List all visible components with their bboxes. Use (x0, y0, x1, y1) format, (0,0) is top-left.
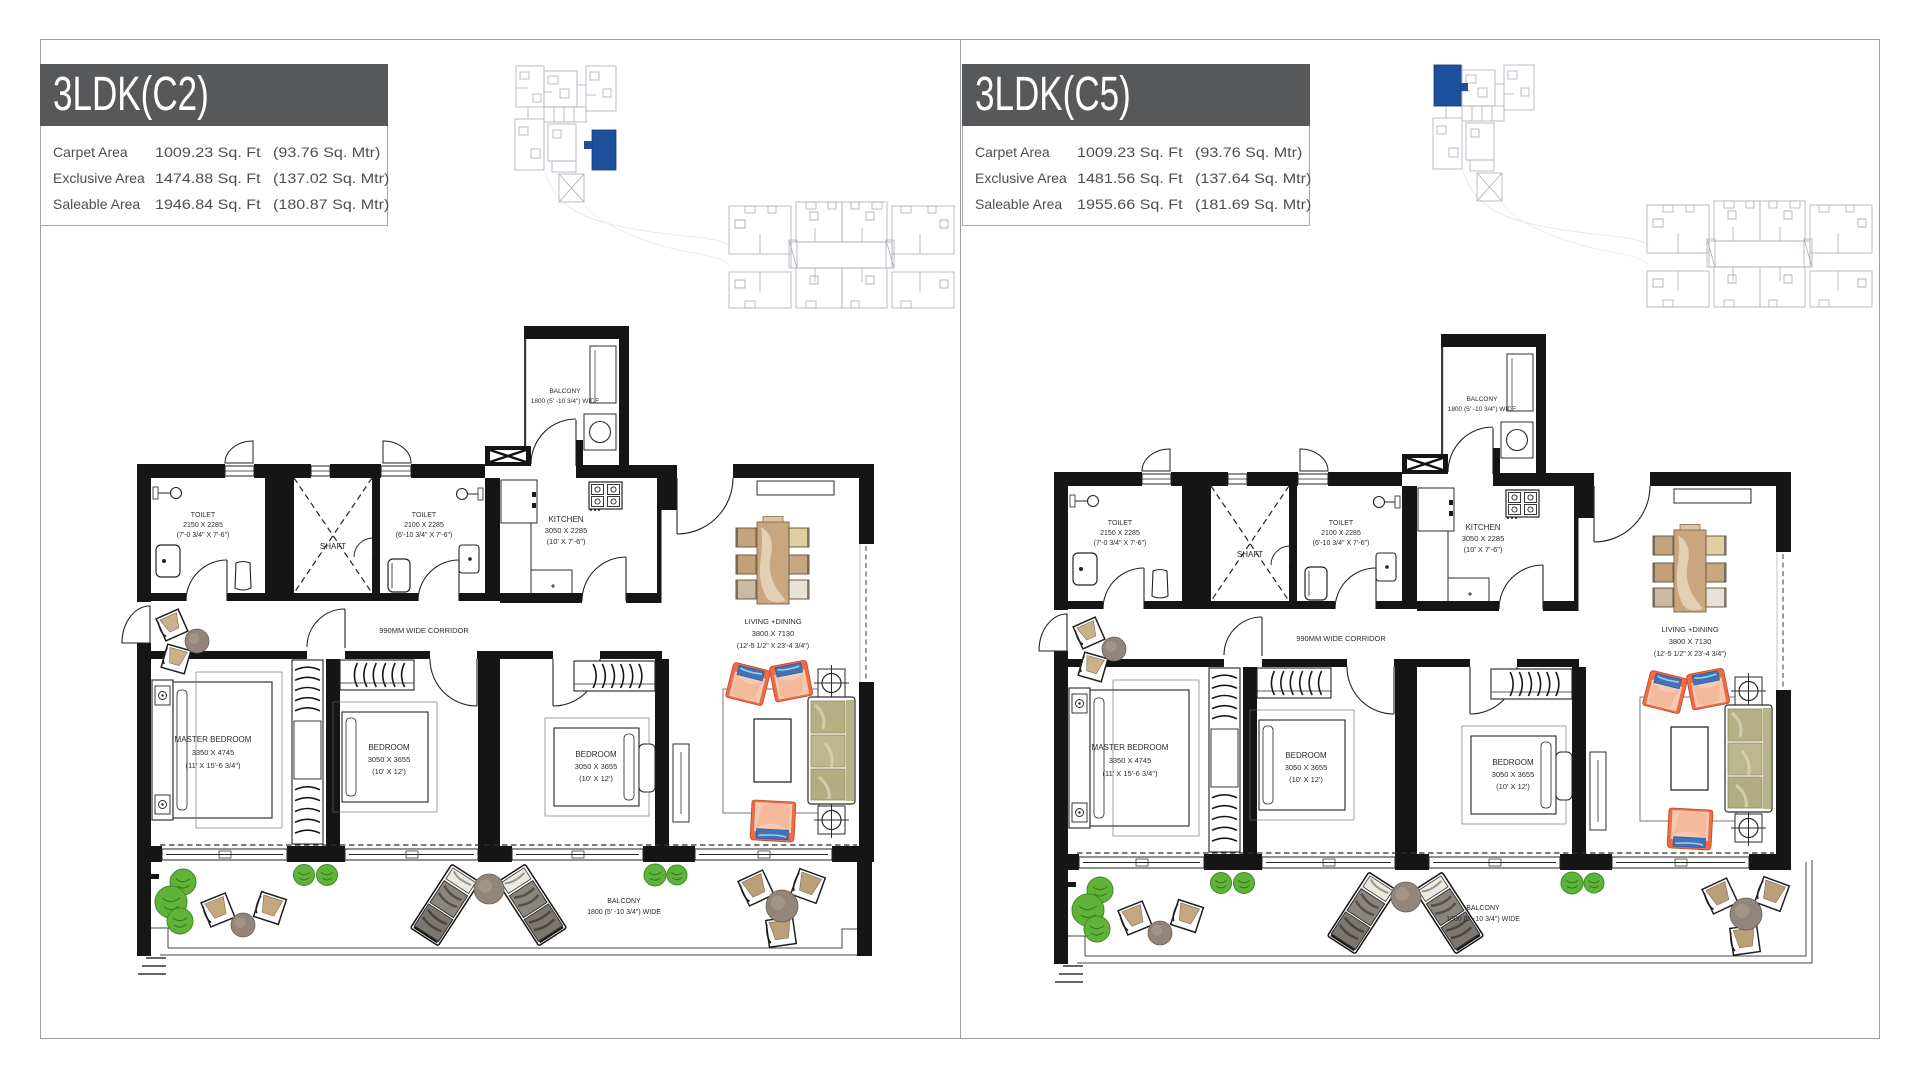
svg-text:BALCONY: BALCONY (607, 898, 641, 905)
svg-text:TOILET: TOILET (1108, 520, 1133, 527)
svg-text:990MM WIDE CORRIDOR: 990MM WIDE CORRIDOR (1296, 634, 1386, 643)
svg-text:(12'-5 1/2" X 23'-4 3/4"): (12'-5 1/2" X 23'-4 3/4") (737, 643, 809, 650)
svg-text:3050 X 3655: 3050 X 3655 (1285, 763, 1328, 772)
svg-text:3350 X 4745: 3350 X 4745 (192, 748, 235, 757)
svg-text:MASTER BEDROOM: MASTER BEDROOM (1092, 743, 1169, 752)
svg-text:3050 X 2285: 3050 X 2285 (545, 526, 588, 535)
svg-text:BEDROOM: BEDROOM (368, 743, 410, 752)
svg-text:TOILET: TOILET (191, 512, 216, 519)
svg-text:3350 X 4745: 3350 X 4745 (1109, 756, 1152, 765)
svg-text:BEDROOM: BEDROOM (1285, 751, 1327, 760)
svg-text:(10' X 12'): (10' X 12') (372, 767, 406, 776)
svg-text:3050 X 3655: 3050 X 3655 (1492, 770, 1535, 779)
svg-text:3050 X 3655: 3050 X 3655 (368, 755, 411, 764)
svg-text:KITCHEN: KITCHEN (1465, 523, 1500, 532)
svg-text:BALCONY: BALCONY (1466, 905, 1500, 912)
svg-text:(7'-0 3/4" X 7'-6"): (7'-0 3/4" X 7'-6") (1094, 540, 1147, 547)
svg-text:(11' X 15'-6 3/4"): (11' X 15'-6 3/4") (1103, 769, 1159, 778)
svg-text:2150 X 2285: 2150 X 2285 (183, 522, 223, 529)
svg-text:1800 (5' -10 3/4") WIDE: 1800 (5' -10 3/4") WIDE (1446, 916, 1520, 923)
svg-text:(10' X 12'): (10' X 12') (1289, 775, 1323, 784)
svg-text:(10' X 7'-6"): (10' X 7'-6") (547, 537, 586, 546)
svg-text:BALCONY: BALCONY (549, 388, 581, 395)
svg-text:1800 (5' -10 3/4") WIDE: 1800 (5' -10 3/4") WIDE (587, 909, 661, 916)
svg-text:SHAFT: SHAFT (320, 542, 346, 551)
svg-text:3050 X 2285: 3050 X 2285 (1462, 534, 1505, 543)
svg-text:(6'-10 3/4" X 7'-6"): (6'-10 3/4" X 7'-6") (396, 532, 453, 539)
svg-text:(10' X 7'-6"): (10' X 7'-6") (1464, 545, 1503, 554)
svg-text:(10' X 12'): (10' X 12') (1496, 782, 1530, 791)
svg-text:990MM WIDE CORRIDOR: 990MM WIDE CORRIDOR (379, 626, 469, 635)
svg-text:(12'-5 1/2" X 23'-4 3/4"): (12'-5 1/2" X 23'-4 3/4") (1654, 651, 1726, 658)
svg-text:SHAFT: SHAFT (1237, 550, 1263, 559)
svg-text:3800 X 7130: 3800 X 7130 (752, 629, 795, 638)
svg-text:(6'-10 3/4" X 7'-6"): (6'-10 3/4" X 7'-6") (1313, 540, 1370, 547)
svg-text:(11' X 15'-6 3/4"): (11' X 15'-6 3/4") (186, 761, 242, 770)
svg-text:BALCONY: BALCONY (1466, 396, 1498, 403)
svg-text:(10' X 12'): (10' X 12') (579, 774, 613, 783)
svg-text:3800 X 7130: 3800 X 7130 (1669, 637, 1712, 646)
svg-text:BEDROOM: BEDROOM (575, 750, 617, 759)
svg-text:2100 X 2285: 2100 X 2285 (404, 522, 444, 529)
svg-text:MASTER BEDROOM: MASTER BEDROOM (175, 735, 252, 744)
svg-text:3050 X 3655: 3050 X 3655 (575, 762, 618, 771)
svg-text:(7'-0 3/4" X 7'-6"): (7'-0 3/4" X 7'-6") (177, 532, 230, 539)
svg-text:TOILET: TOILET (1329, 520, 1354, 527)
svg-text:LIVING +DINING: LIVING +DINING (744, 617, 801, 626)
svg-text:1800 (5' -10 3/4") WIDE: 1800 (5' -10 3/4") WIDE (531, 398, 600, 405)
svg-text:1800 (5' -10 3/4") WIDE: 1800 (5' -10 3/4") WIDE (1448, 406, 1517, 413)
svg-text:2100 X 2285: 2100 X 2285 (1321, 530, 1361, 537)
svg-text:TOILET: TOILET (412, 512, 437, 519)
svg-text:BEDROOM: BEDROOM (1492, 758, 1534, 767)
svg-text:LIVING +DINING: LIVING +DINING (1661, 625, 1718, 634)
svg-text:KITCHEN: KITCHEN (548, 515, 583, 524)
svg-text:2150 X 2285: 2150 X 2285 (1100, 530, 1140, 537)
